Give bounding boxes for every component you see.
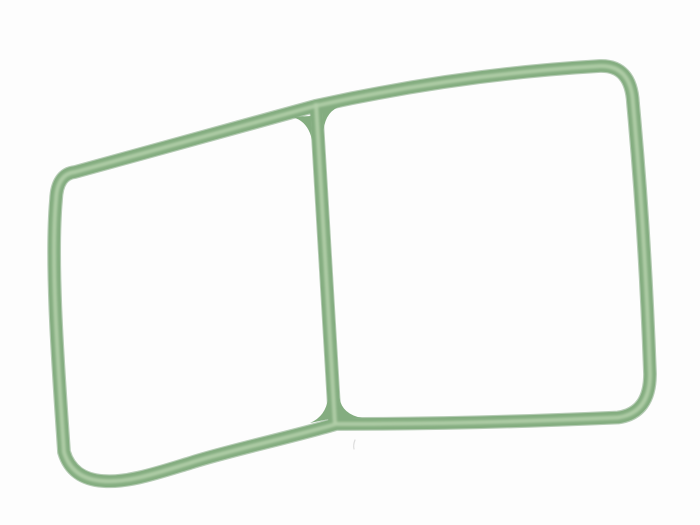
gasket-photo xyxy=(0,0,700,525)
product-photo xyxy=(0,0,700,525)
backdrop xyxy=(0,0,700,525)
